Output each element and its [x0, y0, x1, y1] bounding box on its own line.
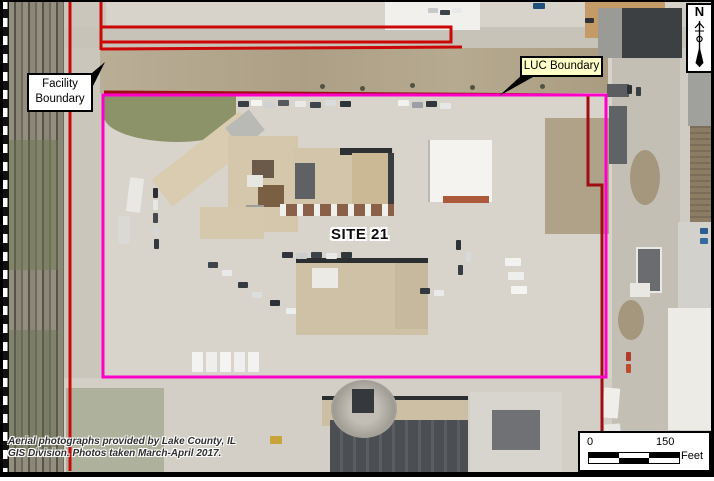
grass-patch [66, 388, 164, 474]
dirt-patch [630, 150, 660, 205]
scale-segment [619, 458, 649, 463]
car [428, 8, 438, 13]
rail-vegetation [6, 140, 58, 270]
car [311, 252, 322, 258]
rooftop-unit [312, 268, 338, 288]
trailer [234, 352, 245, 372]
attribution: Aerial photographs provided by Lake Coun… [8, 436, 236, 460]
loading-docks [280, 204, 394, 216]
building-small [630, 283, 650, 297]
car [412, 102, 423, 108]
facility-boundary-label-line2: Boundary [29, 92, 91, 107]
car [153, 200, 158, 210]
attribution-line1: Aerial photographs provided by Lake Coun… [8, 436, 236, 448]
car [252, 292, 262, 298]
car [434, 290, 444, 296]
car [456, 240, 461, 250]
scale-segment [589, 458, 619, 463]
van [505, 258, 521, 266]
luc-boundary-label: LUC Boundary [520, 56, 603, 77]
aerial-map: Facility Boundary LUC Boundary SITE 21 A… [0, 0, 714, 477]
bush [470, 85, 475, 90]
car [426, 101, 437, 107]
site-label: SITE 21 [331, 226, 389, 243]
building-lower-east [395, 263, 428, 329]
car [286, 308, 296, 314]
trailer [192, 352, 203, 372]
car [420, 288, 430, 294]
van [511, 286, 527, 294]
truck [118, 216, 130, 244]
car [264, 102, 275, 108]
roof-edge [388, 153, 394, 211]
dirt-patch [618, 300, 644, 340]
dumpster [700, 238, 708, 244]
car [440, 103, 451, 109]
van [508, 272, 524, 280]
rail-vegetation [6, 330, 58, 450]
building-gray [607, 84, 629, 97]
car [208, 262, 218, 268]
north-arrow-icon [688, 19, 711, 69]
building-white-edge [443, 196, 489, 203]
car [627, 85, 632, 94]
building-long-east [352, 153, 392, 211]
scale-end-label: 150 [656, 436, 674, 448]
trailer [602, 387, 621, 418]
car [533, 3, 545, 9]
car [153, 213, 158, 223]
car [238, 101, 249, 107]
north-arrow-box: N [686, 3, 713, 73]
car [626, 352, 631, 361]
car [154, 239, 159, 249]
car [251, 100, 262, 106]
building-gray [598, 8, 622, 58]
car [270, 300, 280, 306]
building-wing [200, 207, 264, 239]
machinery [270, 436, 282, 444]
building-white-top [385, 0, 480, 30]
scale-bar-box: 0 150 Feet [578, 431, 711, 472]
car [296, 253, 307, 259]
car [398, 100, 409, 106]
car [440, 10, 450, 15]
car [325, 100, 336, 106]
trailer [248, 352, 259, 372]
car [626, 364, 631, 373]
car [310, 102, 321, 108]
car [282, 252, 293, 258]
car [458, 265, 463, 275]
car [278, 100, 289, 106]
scale-unit-label: Feet [681, 450, 703, 462]
car [238, 282, 248, 288]
car [326, 253, 337, 259]
car [341, 252, 352, 258]
tank-center [352, 389, 374, 413]
bush [360, 86, 365, 91]
bush [410, 83, 415, 88]
car [340, 101, 351, 107]
bush [540, 84, 545, 89]
building-brown [690, 126, 714, 222]
building-light [678, 222, 714, 310]
map-frame: Facility Boundary LUC Boundary SITE 21 A… [0, 0, 714, 481]
scale-bar [588, 452, 680, 464]
roof-patch [295, 163, 315, 199]
car [585, 18, 594, 23]
dirt-area [545, 118, 609, 234]
car [153, 188, 158, 198]
bush [320, 84, 325, 89]
building-white [428, 140, 492, 202]
roof-patch [492, 410, 540, 450]
north-letter: N [688, 5, 711, 19]
building-white-bottom [668, 308, 714, 430]
rooftop-unit [247, 175, 263, 187]
car [452, 8, 462, 13]
car [222, 270, 232, 276]
trailer [206, 352, 217, 372]
trailer [220, 352, 231, 372]
attribution-line2: GIS Division. Photos taken March-April 2… [8, 448, 236, 460]
scale-start-label: 0 [587, 436, 593, 448]
facility-boundary-label: Facility Boundary [27, 73, 93, 112]
car [154, 226, 159, 236]
car [636, 87, 641, 96]
building-gray [688, 70, 714, 126]
car [466, 252, 471, 262]
car [295, 101, 306, 107]
building-gray [609, 106, 627, 164]
facility-boundary-label-line1: Facility [29, 77, 91, 92]
scale-segment [649, 458, 679, 463]
dumpster [700, 228, 708, 234]
